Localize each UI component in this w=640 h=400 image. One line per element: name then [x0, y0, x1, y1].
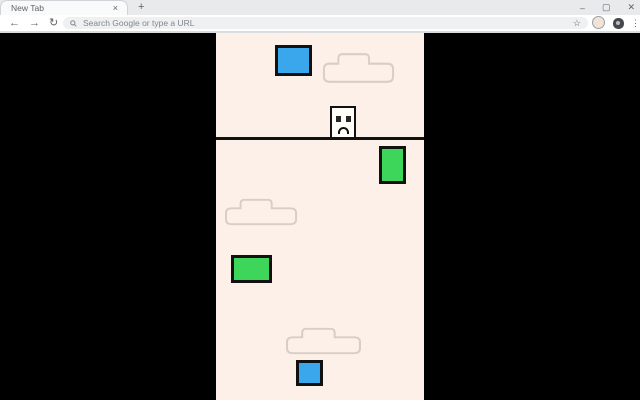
extension-icon[interactable]	[613, 18, 624, 29]
player-eye	[336, 116, 341, 122]
omnibox-placeholder: Search Google or type a URL	[83, 17, 195, 29]
player-character	[330, 106, 356, 139]
tab-new-tab[interactable]: New Tab ×	[0, 0, 128, 15]
player-mouth	[338, 127, 349, 134]
back-icon[interactable]: ←	[9, 15, 20, 31]
browser-toolbar: ← → ↻ Search Google or type a URL ☆ ⋮	[0, 15, 640, 31]
minimize-button[interactable]: –	[580, 3, 585, 13]
browser-window: New Tab × + – ▢ ✕ ← → ↻ Search Google or…	[0, 0, 640, 400]
maximize-button[interactable]: ▢	[602, 2, 611, 13]
cloud-top	[322, 52, 395, 84]
new-tab-button[interactable]: +	[138, 0, 144, 15]
bookmark-icon[interactable]: ☆	[573, 17, 581, 29]
window-close-button[interactable]: ✕	[627, 2, 635, 13]
green-block-left	[231, 255, 272, 283]
page-content	[0, 33, 640, 400]
search-icon	[70, 20, 77, 27]
player-eye	[346, 116, 351, 122]
cloud-bottom	[285, 327, 362, 355]
window-controls: – ▢ ✕	[580, 0, 635, 15]
ground-line	[216, 137, 424, 140]
blue-block-top	[275, 45, 312, 76]
tab-title: New Tab	[11, 1, 44, 16]
extension-icon-dot	[616, 21, 620, 25]
forward-icon[interactable]: →	[29, 15, 40, 31]
blue-block-bottom	[296, 360, 323, 386]
tab-close-icon[interactable]: ×	[113, 1, 118, 16]
profile-avatar[interactable]	[592, 16, 605, 29]
menu-icon[interactable]: ⋮	[631, 15, 640, 31]
reload-icon[interactable]: ↻	[49, 15, 58, 31]
tab-strip: New Tab × + – ▢ ✕	[0, 0, 640, 15]
green-block-right	[379, 146, 406, 184]
game-canvas[interactable]	[216, 33, 424, 400]
address-bar[interactable]: Search Google or type a URL ☆	[63, 17, 588, 29]
cloud-middle	[224, 198, 298, 226]
